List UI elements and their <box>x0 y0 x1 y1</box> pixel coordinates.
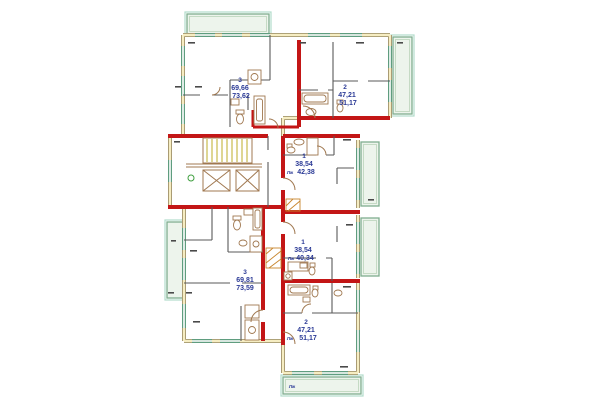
bathtub-icon <box>307 138 318 155</box>
apt-mid-right-loggia: Лж <box>287 170 294 175</box>
sink-icon <box>244 209 253 215</box>
balcony-top-right <box>393 37 412 114</box>
apt-top-left-rooms: 3 <box>238 77 242 84</box>
sink-icon <box>300 263 307 268</box>
apt-bottom-right-rooms: 2 <box>304 319 308 326</box>
sink-icon <box>303 297 310 302</box>
apt-bottom-right-area2: 51,17 <box>299 335 317 342</box>
apt-lower-mid-area2: 40,34 <box>296 255 314 262</box>
apt-lower-left-area2: 73,59 <box>236 285 254 292</box>
apt-mid-right-area2: 42,38 <box>297 169 315 176</box>
apt-mid-right-area1: 38,54 <box>295 161 313 168</box>
sink-icon <box>239 240 247 246</box>
exterior-walls <box>170 35 390 373</box>
apt-bottom-right-loggia: Лж <box>287 336 294 341</box>
sink-icon <box>294 139 304 145</box>
floor-plan-svg: 3 69,66 73,62 2 47,21 51,17 1 38,54 42,3… <box>0 0 600 400</box>
apt-lower-mid-rooms: 1 <box>301 239 305 246</box>
apt-mid-right-rooms: 1 <box>302 153 306 160</box>
riser-symbol <box>188 175 194 181</box>
balcony-lower-left <box>167 222 183 298</box>
apt-top-right-area1: 47,21 <box>338 92 356 99</box>
apt-lower-left-rooms: 3 <box>243 269 247 276</box>
apt-top-right-area2: 51,17 <box>339 100 357 107</box>
floor-plan: 3 69,66 73,62 2 47,21 51,17 1 38,54 42,3… <box>0 0 600 400</box>
apt-bottom-right-area1: 47,21 <box>297 327 315 334</box>
kitchen-sink-icon <box>334 290 342 296</box>
staircase <box>186 138 262 167</box>
balcony-bottom-label: Лж <box>289 384 296 389</box>
apt-top-left-area2: 73,62 <box>232 93 250 100</box>
apt-top-left-area1: 69,66 <box>231 85 249 92</box>
apt-lower-mid-area1: 38,54 <box>294 247 312 254</box>
balcony-top-left <box>187 14 269 34</box>
apt-lower-left-area1: 69,81 <box>236 277 254 284</box>
apt-top-right-rooms: 2 <box>343 84 347 91</box>
apt-lower-mid-loggia: Лж <box>288 256 295 261</box>
elevator-shafts <box>188 170 259 191</box>
toilet-icon <box>236 110 244 114</box>
toilet-icon <box>233 216 241 220</box>
toilet-icon <box>310 263 315 267</box>
